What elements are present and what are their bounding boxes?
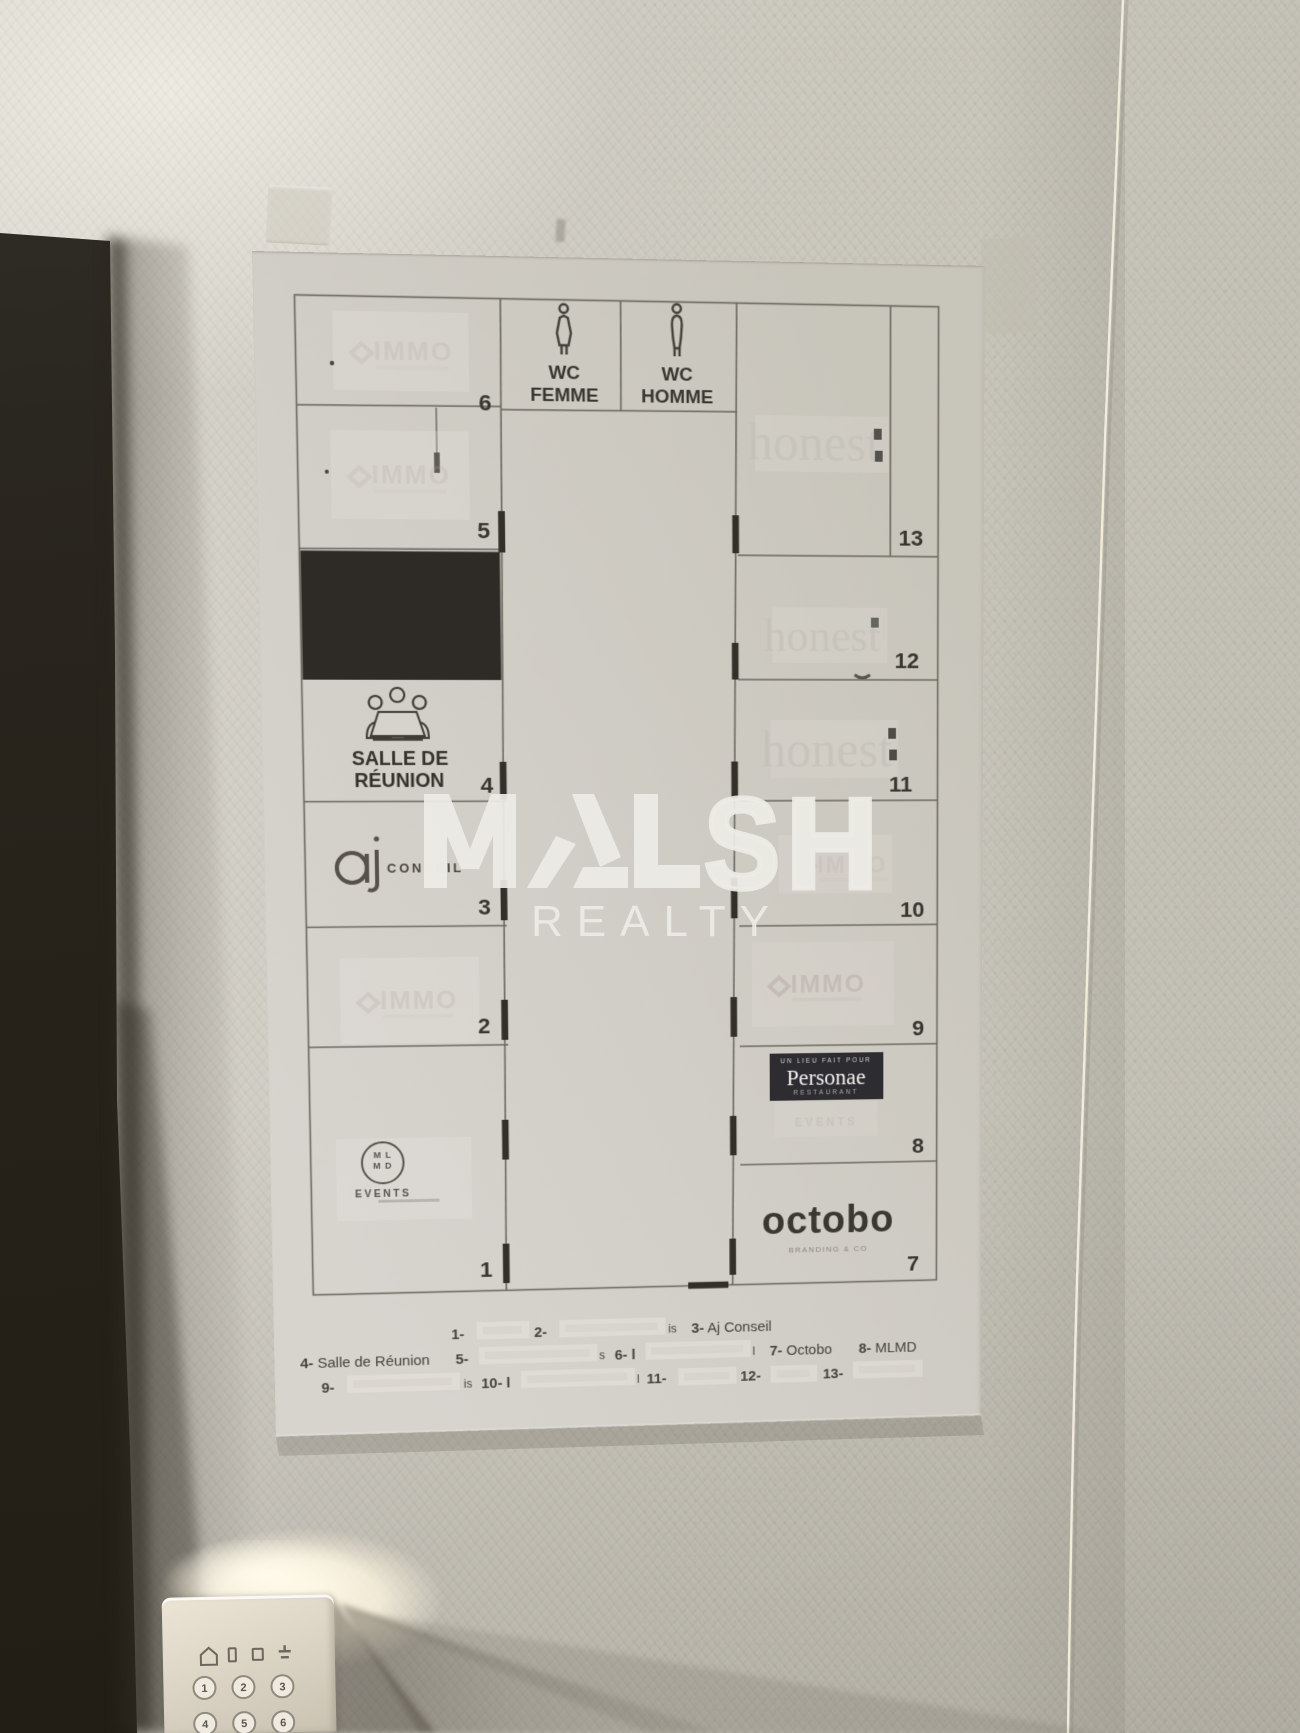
svg-text:1: 1 [201, 1683, 207, 1695]
svg-text:2: 2 [240, 1682, 246, 1694]
svg-text:S: S [704, 772, 780, 916]
svg-text:5: 5 [241, 1718, 247, 1730]
svg-text:3: 3 [279, 1681, 285, 1693]
svg-text:REALTY: REALTY [531, 897, 783, 946]
svg-text:6: 6 [280, 1717, 286, 1729]
svg-text:H: H [786, 772, 878, 916]
svg-text:4: 4 [202, 1719, 209, 1731]
